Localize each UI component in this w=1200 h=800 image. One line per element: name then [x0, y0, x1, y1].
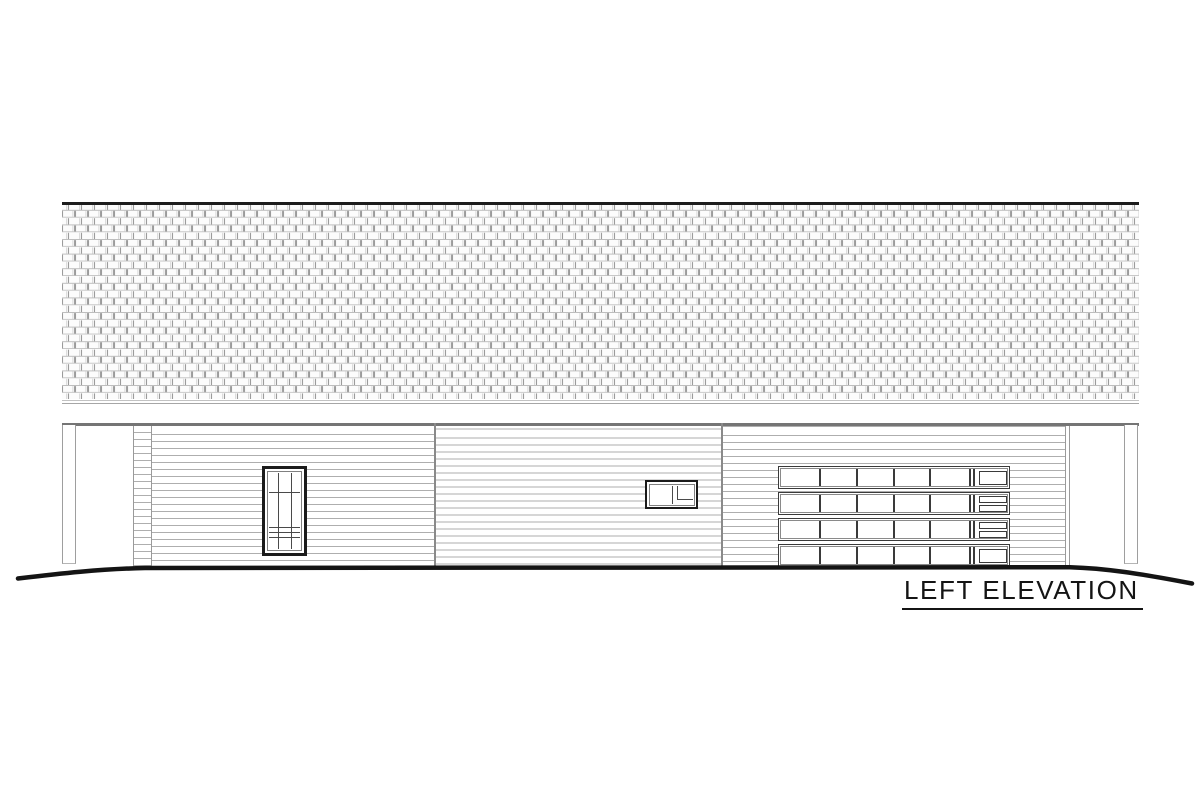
- drawing-title: LEFT ELEVATION: [902, 575, 1143, 610]
- elevation-drawing: LEFT ELEVATION: [0, 0, 1200, 800]
- garage-door-stile: [929, 469, 931, 486]
- garage-door-stile: [856, 521, 858, 538]
- window-meeting-rail: [269, 527, 300, 528]
- garage-door-stile: [819, 521, 821, 538]
- roof-top-edge: [62, 202, 1139, 205]
- wall-joint-line: [721, 423, 723, 568]
- window-small: [645, 480, 698, 509]
- garage-door-inset-panel: [979, 505, 1007, 512]
- garage-door-stile: [893, 547, 895, 564]
- garage-door-stile: [819, 495, 821, 512]
- garage-door-stile: [856, 469, 858, 486]
- open-bay-left: [76, 426, 133, 567]
- garage-door-stile: [893, 521, 895, 538]
- roof-shingles: [62, 203, 1139, 399]
- window-meeting-rail: [269, 537, 300, 538]
- eave-line: [62, 403, 1139, 404]
- garage-door-stile: [856, 495, 858, 512]
- garage-door-stile: [973, 547, 975, 564]
- window-divider: [677, 486, 678, 500]
- window-sash: [649, 484, 695, 506]
- garage-door-stile: [969, 495, 971, 512]
- garage-door-panel-row: [778, 492, 1010, 515]
- garage-door-stile: [819, 469, 821, 486]
- garage-door-inset-panel: [979, 471, 1007, 485]
- window-sash: [267, 471, 302, 551]
- open-bay-right: [1070, 426, 1124, 567]
- corner-board: [1065, 426, 1070, 568]
- garage-door-stile: [973, 495, 975, 512]
- corner-siding-strip: [133, 426, 152, 568]
- garage-door-stile: [929, 495, 931, 512]
- eave-line: [62, 400, 1139, 401]
- garage-door-inset-panel: [979, 531, 1007, 538]
- garage-door-inset-panel: [979, 522, 1007, 529]
- garage-door-stile: [893, 495, 895, 512]
- garage-door-stile: [893, 469, 895, 486]
- window-tall: [262, 466, 307, 556]
- garage-door-stile: [973, 469, 975, 486]
- garage-door: [778, 466, 1010, 567]
- garage-door-stile: [929, 547, 931, 564]
- garage-door-stile: [969, 547, 971, 564]
- window-meeting-rail: [269, 532, 300, 533]
- garage-door-inset-panel: [979, 549, 1007, 563]
- garage-door-stile: [929, 521, 931, 538]
- garage-door-stile: [969, 521, 971, 538]
- garage-door-stile: [969, 469, 971, 486]
- shingle-pattern: [62, 203, 1139, 399]
- garage-door-panel-row: [778, 518, 1010, 541]
- porch-post-right: [1124, 425, 1138, 564]
- window-divider: [672, 486, 673, 504]
- garage-door-panel-row: [778, 466, 1010, 489]
- window-muntin-horizontal: [269, 492, 300, 493]
- garage-door-panel-row: [778, 544, 1010, 567]
- garage-door-stile: [856, 547, 858, 564]
- window-divider: [677, 499, 693, 500]
- garage-door-stile: [973, 521, 975, 538]
- garage-door-inset-panel: [979, 496, 1007, 503]
- garage-door-stile: [819, 547, 821, 564]
- porch-post-left: [62, 425, 76, 564]
- wall-joint-line: [434, 423, 436, 568]
